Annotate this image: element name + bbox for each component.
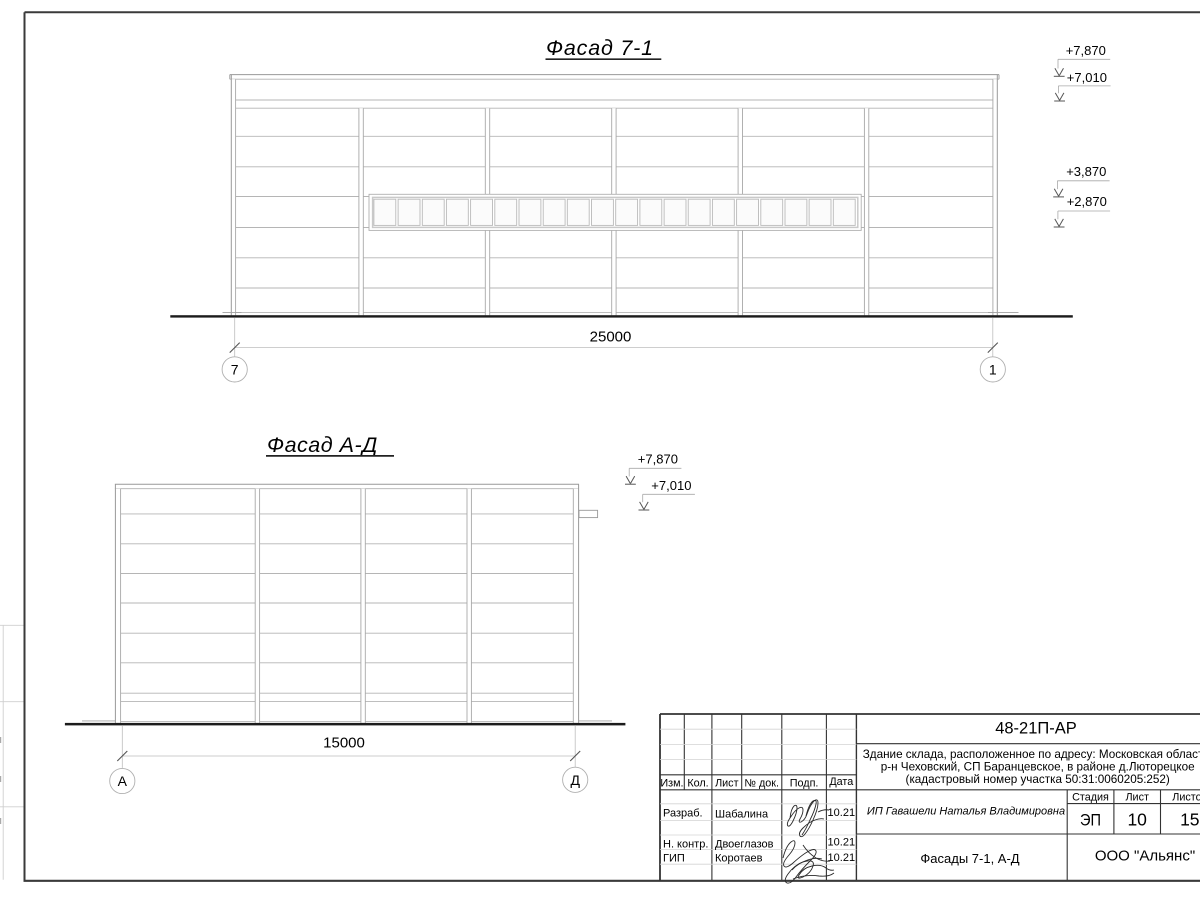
svg-text:А: А: [118, 773, 128, 789]
svg-text:+7,010: +7,010: [651, 478, 691, 493]
svg-text:+3,870: +3,870: [1066, 164, 1106, 179]
svg-text:10: 10: [1127, 809, 1147, 829]
svg-text:Н. контр.: Н. контр.: [663, 839, 708, 851]
svg-text:Дата: Дата: [829, 776, 853, 788]
svg-text:Разраб.: Разраб.: [663, 808, 703, 820]
svg-text:+7,870: +7,870: [638, 452, 678, 467]
svg-text:Шабалина: Шабалина: [715, 809, 769, 821]
svg-text:Фасады 7-1, А-Д: Фасады 7-1, А-Д: [920, 851, 1019, 866]
svg-text:ООО "Альянс": ООО "Альянс": [1095, 848, 1195, 865]
svg-text:1: 1: [989, 361, 997, 377]
svg-text:7: 7: [231, 361, 239, 377]
svg-text:+2,870: +2,870: [1067, 194, 1107, 209]
svg-text:ЭП: ЭП: [1080, 810, 1101, 829]
svg-text:Изм.: Изм.: [660, 777, 683, 789]
svg-text:48-21П-АР: 48-21П-АР: [995, 720, 1077, 738]
svg-text:10.21: 10.21: [828, 807, 856, 819]
svg-text:+7,010: +7,010: [1067, 70, 1107, 85]
svg-text:Подп.: Подп.: [790, 777, 819, 789]
svg-text:Фасад 7-1: Фасад 7-1: [546, 36, 654, 60]
svg-text:Лист: Лист: [715, 777, 739, 789]
svg-text:Фасад А-Д: Фасад А-Д: [267, 433, 378, 457]
svg-text:Коротаев: Коротаев: [715, 853, 763, 865]
svg-text:15: 15: [1180, 809, 1199, 829]
svg-text:Кол.: Кол.: [687, 777, 708, 789]
svg-text:Стадия: Стадия: [1072, 791, 1109, 803]
svg-text:25000: 25000: [590, 329, 632, 346]
svg-text:№ док.: № док.: [744, 777, 779, 789]
svg-text:Двоеглазов: Двоеглазов: [715, 839, 774, 851]
svg-text:10.21: 10.21: [828, 852, 856, 864]
svg-text:Здание склада, расположенное п: Здание склада, расположенное по адресу: …: [863, 748, 1200, 761]
svg-text:Д: Д: [570, 772, 580, 788]
svg-text:ИП Гавашели Наталья Владимиров: ИП Гавашели Наталья Владимировна: [867, 806, 1065, 818]
svg-text:р-н Чеховский, СП Баранцевское: р-н Чеховский, СП Баранцевское, в районе…: [881, 760, 1195, 773]
svg-text:10.21: 10.21: [828, 837, 856, 849]
svg-text:+7,870: +7,870: [1066, 43, 1106, 58]
svg-text:Листов: Листов: [1172, 791, 1200, 803]
svg-text:(кадастровый номер участка 50:: (кадастровый номер участка 50:31:0060205…: [906, 773, 1170, 786]
svg-text:ГИП: ГИП: [663, 853, 685, 865]
svg-text:15000: 15000: [323, 735, 365, 752]
svg-text:Лист: Лист: [1125, 791, 1149, 803]
